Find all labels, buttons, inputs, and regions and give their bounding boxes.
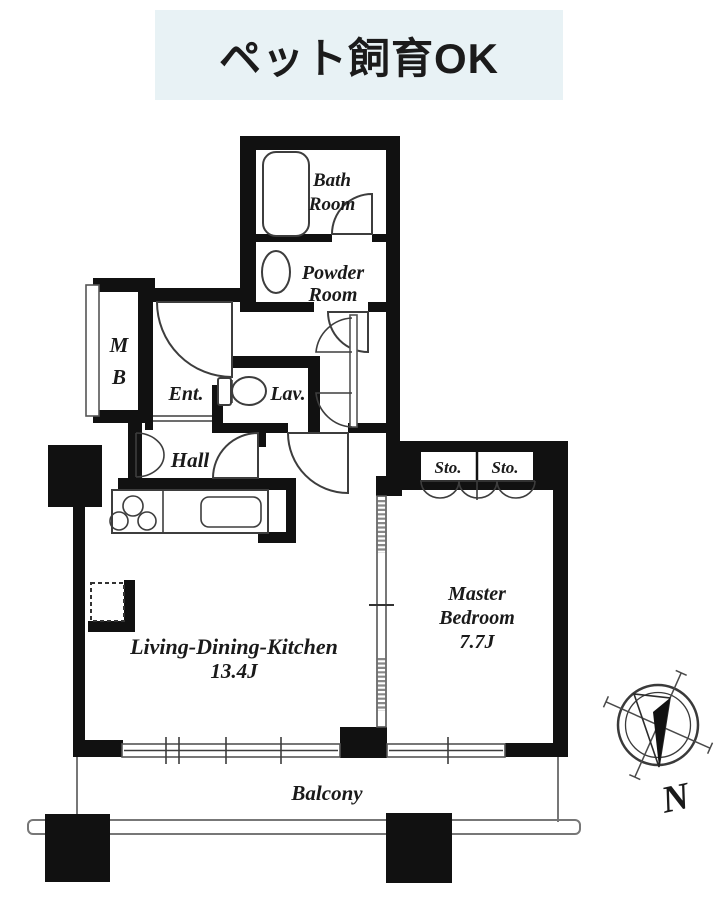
storage-right-label: Sto. bbox=[492, 458, 519, 477]
lavatory-label: Lav. bbox=[269, 383, 305, 405]
pillar-left bbox=[45, 814, 110, 882]
bath-room-label-1: Bath bbox=[312, 170, 351, 191]
sliding-partition-icon bbox=[369, 496, 394, 727]
pillar-center bbox=[386, 813, 452, 883]
entrance-label: Ent. bbox=[167, 383, 203, 405]
bathtub-icon bbox=[263, 152, 309, 236]
mb-label-2: B bbox=[111, 365, 126, 389]
compass-north-label: N bbox=[657, 775, 695, 822]
floor-plan-drawing: Bath Room Powder Room M B Ent. bbox=[0, 0, 718, 904]
ldk-label: Living-Dining-Kitchen bbox=[129, 634, 338, 659]
entrance-step-line bbox=[153, 416, 212, 421]
toilet-icon bbox=[218, 377, 266, 405]
mb-outer-wall-line bbox=[86, 285, 99, 416]
master-bedroom-label-2: Bedroom bbox=[438, 607, 515, 629]
pipe-space-icon bbox=[91, 583, 124, 621]
hall-label: Hall bbox=[170, 448, 210, 472]
powder-room-label-1: Powder bbox=[301, 262, 364, 284]
storage-left-label: Sto. bbox=[435, 458, 462, 477]
ldk-window-icon bbox=[122, 737, 340, 764]
hall-door-arc-icon bbox=[213, 433, 258, 478]
powder-sink-icon bbox=[262, 251, 290, 293]
kitchen-counter-icon bbox=[110, 490, 268, 533]
master-bedroom-size-label: 7.7J bbox=[460, 631, 496, 653]
bath-room-label-2: Room bbox=[308, 194, 355, 215]
entrance-door-arc-icon bbox=[157, 302, 232, 377]
powder-room-label-2: Room bbox=[308, 284, 358, 306]
mb-label-1: M bbox=[109, 333, 130, 357]
ldk-size-label: 13.4J bbox=[210, 659, 259, 683]
bedroom-window-icon bbox=[387, 737, 505, 764]
compass-icon: N bbox=[583, 650, 718, 822]
balcony-label: Balcony bbox=[290, 781, 363, 805]
floor-plan-page: ペット飼育OK bbox=[0, 0, 718, 904]
ldk-entry-door-arc-icon bbox=[288, 433, 348, 493]
master-bedroom-label-1: Master bbox=[447, 583, 506, 605]
